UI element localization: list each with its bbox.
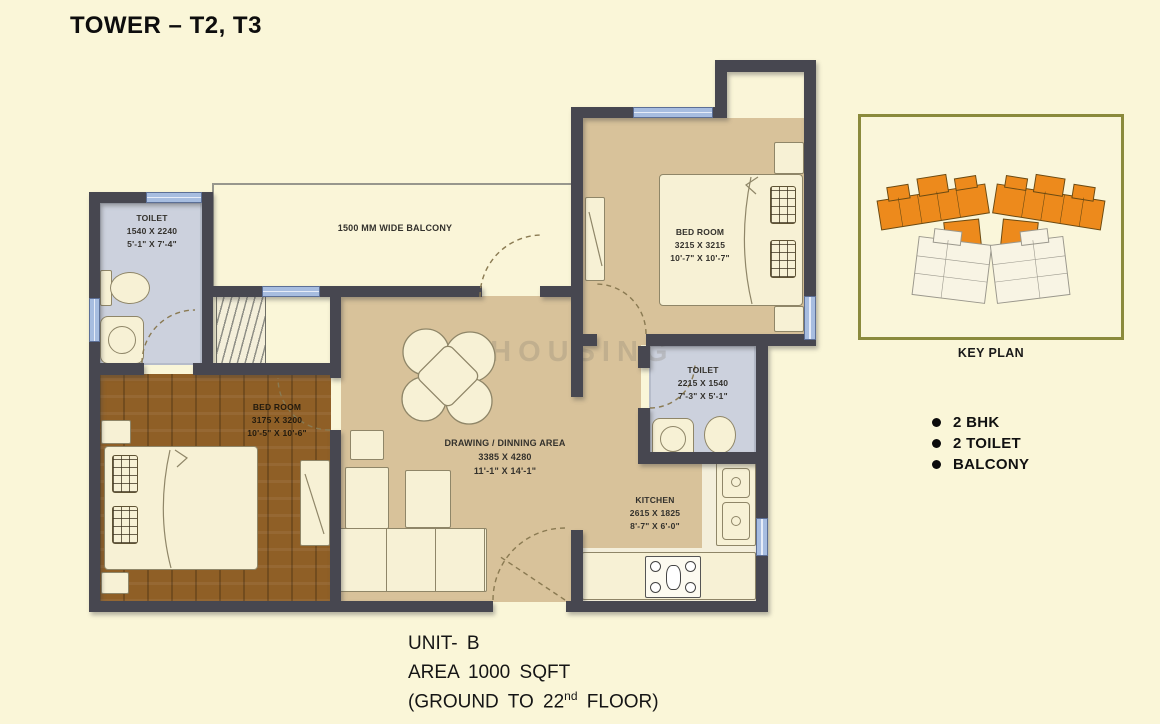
key-plan-drawing	[861, 117, 1121, 337]
wardrobe	[585, 197, 605, 281]
sofa	[337, 528, 487, 592]
pillow	[770, 186, 796, 224]
legend-item: BALCONY	[932, 456, 1029, 473]
wc-tank	[702, 452, 738, 462]
room-balcony-floor	[220, 190, 572, 290]
wall-segment	[89, 601, 346, 612]
wall-segment	[756, 346, 768, 518]
room-dim-ft: 8'-7" X 6'-0"	[600, 520, 710, 533]
wall-segment	[756, 556, 768, 612]
bullet-icon	[932, 439, 941, 448]
room-dim-mm: 3175 X 3200	[217, 414, 337, 427]
floors-text-suffix: FLOOR)	[578, 691, 659, 712]
room-toilet-1-label: TOILET 1540 X 2240 5'-1" X 7'-4"	[102, 212, 202, 252]
legend-label: BALCONY	[953, 456, 1029, 473]
stove-center-plate	[666, 565, 681, 590]
room-bedroom-1-label: BED ROOM 3175 X 3200 10'-5" X 10'-6"	[217, 401, 337, 441]
key-plan-other-towers	[912, 227, 1070, 304]
unit-area: AREA 1000 SQFT	[408, 659, 718, 688]
watermark-text: HOUSING	[490, 336, 674, 369]
unit-name: UNIT- B	[408, 630, 718, 659]
legend-label: 2 BHK	[953, 414, 1000, 431]
room-dim-mm: 2615 X 1825	[600, 507, 710, 520]
legend: 2 BHK 2 TOILET BALCONY	[932, 414, 1029, 477]
side-table	[350, 430, 384, 460]
bedroom-2-balcony-floor	[718, 70, 806, 118]
room-dim-ft: 5'-1" X 7'-4"	[102, 238, 202, 251]
sink-drain	[731, 516, 741, 526]
floors-ordinal: nd	[564, 689, 577, 703]
unit-summary: UNIT- B AREA 1000 SQFT (GROUND TO 22nd F…	[408, 630, 718, 717]
room-dim-mm: 1540 X 2240	[102, 225, 202, 238]
sink-drain	[731, 477, 741, 487]
bullet-icon	[932, 460, 941, 469]
room-dim-ft: 11'-1" X 14'-1"	[420, 465, 590, 479]
wc-toilet	[704, 416, 736, 454]
key-plan-box	[858, 114, 1124, 340]
room-name: KITCHEN	[600, 494, 710, 507]
room-name: 1500 MM WIDE BALCONY	[270, 222, 520, 236]
room-balcony-label: 1500 MM WIDE BALCONY	[270, 222, 520, 236]
wash-basin-bowl	[108, 326, 136, 354]
room-dim-ft: 10'-5" X 10'-6"	[217, 427, 337, 440]
legend-item: 2 TOILET	[932, 435, 1029, 452]
bullet-icon	[932, 418, 941, 427]
wall-segment	[346, 601, 493, 612]
wall-segment	[330, 286, 341, 378]
legend-item: 2 BHK	[932, 414, 1029, 431]
side-table	[774, 142, 804, 174]
key-plan-label: KEY PLAN	[858, 346, 1124, 360]
wardrobe-shaft-hatch	[216, 296, 266, 368]
wall-segment	[566, 601, 762, 612]
room-dim-mm: 3215 X 3215	[640, 239, 760, 252]
stove-burner	[685, 561, 696, 572]
room-dim-mm: 3385 X 4280	[420, 451, 590, 465]
room-name: TOILET	[650, 364, 756, 377]
room-kitchen-label: KITCHEN 2615 X 1825 8'-7" X 6'-0"	[600, 494, 710, 534]
watermark-logo-icon: ⌂	[462, 338, 480, 368]
window	[756, 518, 768, 556]
stove-burner	[685, 582, 696, 593]
room-dim-ft: 10'-7" X 10'-7"	[640, 252, 760, 265]
pillow	[770, 240, 796, 278]
room-bedroom-2-label: BED ROOM 3215 X 3215 10'-7" X 10'-7"	[640, 226, 760, 266]
page-title: TOWER – T2, T3	[70, 12, 262, 40]
pillow	[112, 455, 138, 493]
room-dim-mm: 2215 X 1540	[650, 377, 756, 390]
room-name: BED ROOM	[640, 226, 760, 239]
wash-basin-bowl	[660, 426, 686, 452]
room-toilet-2-label: TOILET 2215 X 1540 7'-3" X 5'-1"	[650, 364, 756, 404]
stove	[645, 556, 701, 598]
stove-burner	[650, 561, 661, 572]
side-table	[101, 572, 129, 594]
wc-toilet	[110, 272, 150, 304]
armchair	[345, 467, 389, 529]
room-name: BED ROOM	[217, 401, 337, 414]
room-dim-ft: 7'-3" X 5'-1"	[650, 390, 756, 403]
legend-label: 2 TOILET	[953, 435, 1021, 452]
key-plan-highlighted-towers	[875, 169, 1108, 248]
room-name: DRAWING / DINNING AREA	[420, 437, 590, 451]
window	[804, 296, 816, 340]
room-hall-label: DRAWING / DINNING AREA 3385 X 4280 11'-1…	[420, 437, 590, 479]
pillow	[112, 506, 138, 544]
floors-text: (GROUND TO 22	[408, 691, 564, 712]
room-name: TOILET	[102, 212, 202, 225]
stove-burner	[650, 582, 661, 593]
side-table	[101, 420, 131, 444]
wardrobe	[300, 460, 330, 546]
unit-floors: (GROUND TO 22nd FLOOR)	[408, 687, 718, 717]
side-table	[774, 306, 804, 332]
